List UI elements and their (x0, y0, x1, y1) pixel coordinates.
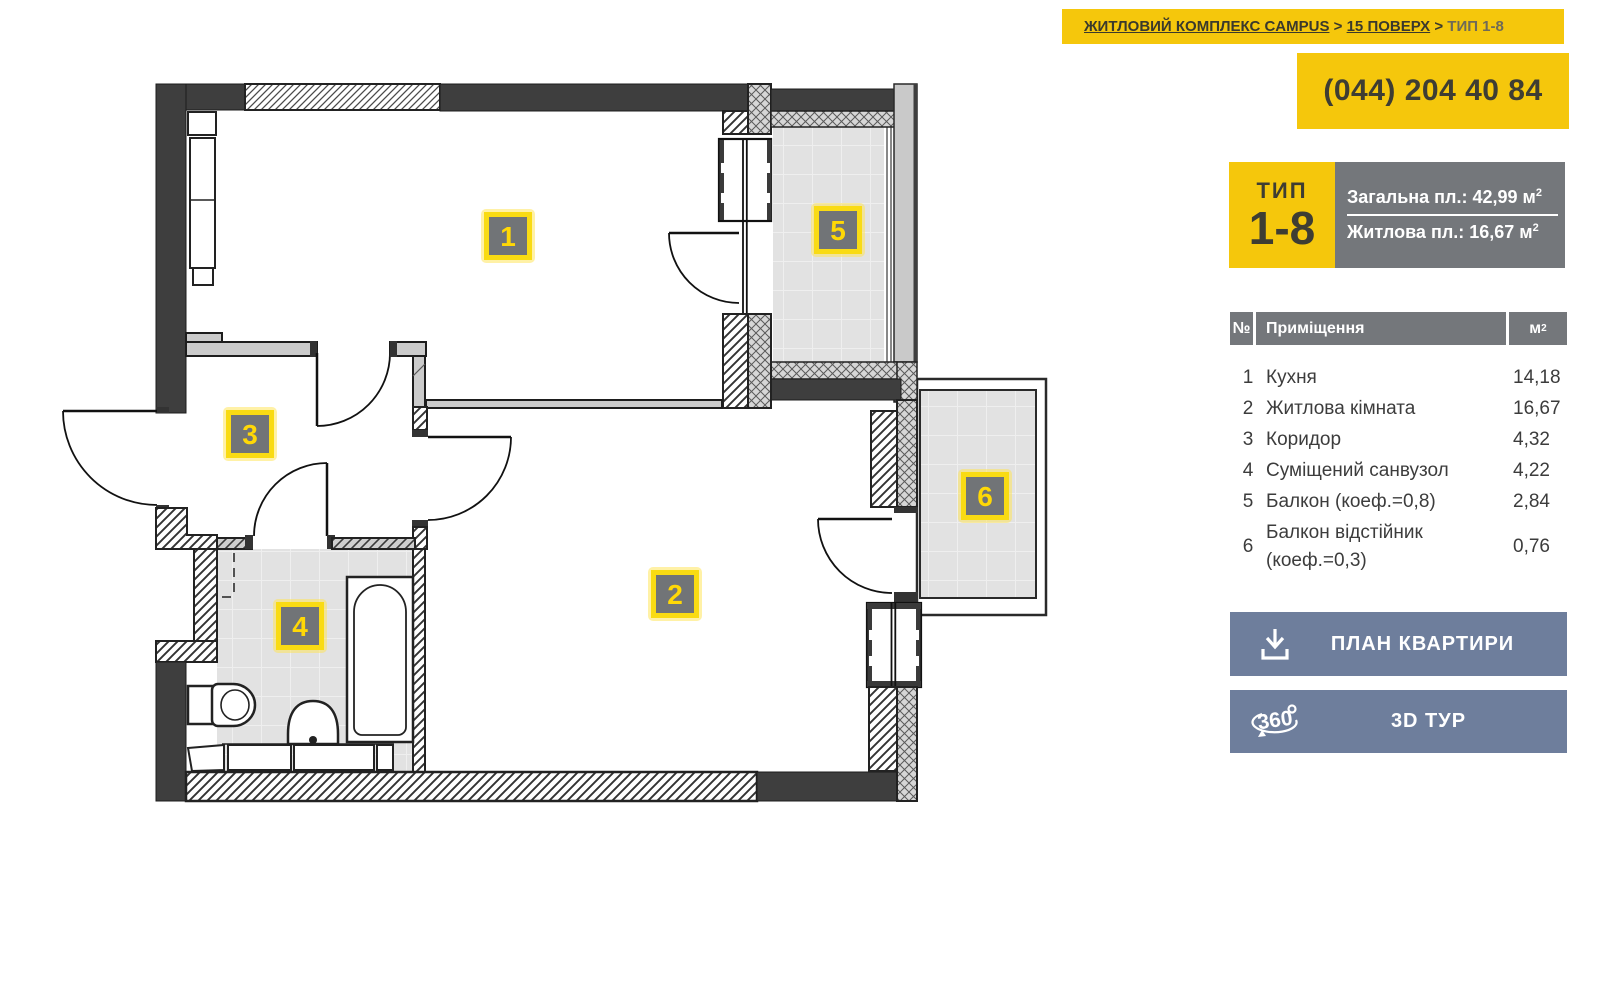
svg-text:2: 2 (667, 579, 683, 610)
svg-text:1: 1 (500, 221, 516, 252)
svg-text:3: 3 (242, 419, 258, 450)
svg-text:5: 5 (830, 215, 846, 246)
svg-text:6: 6 (977, 481, 993, 512)
svg-text:4: 4 (292, 611, 308, 642)
